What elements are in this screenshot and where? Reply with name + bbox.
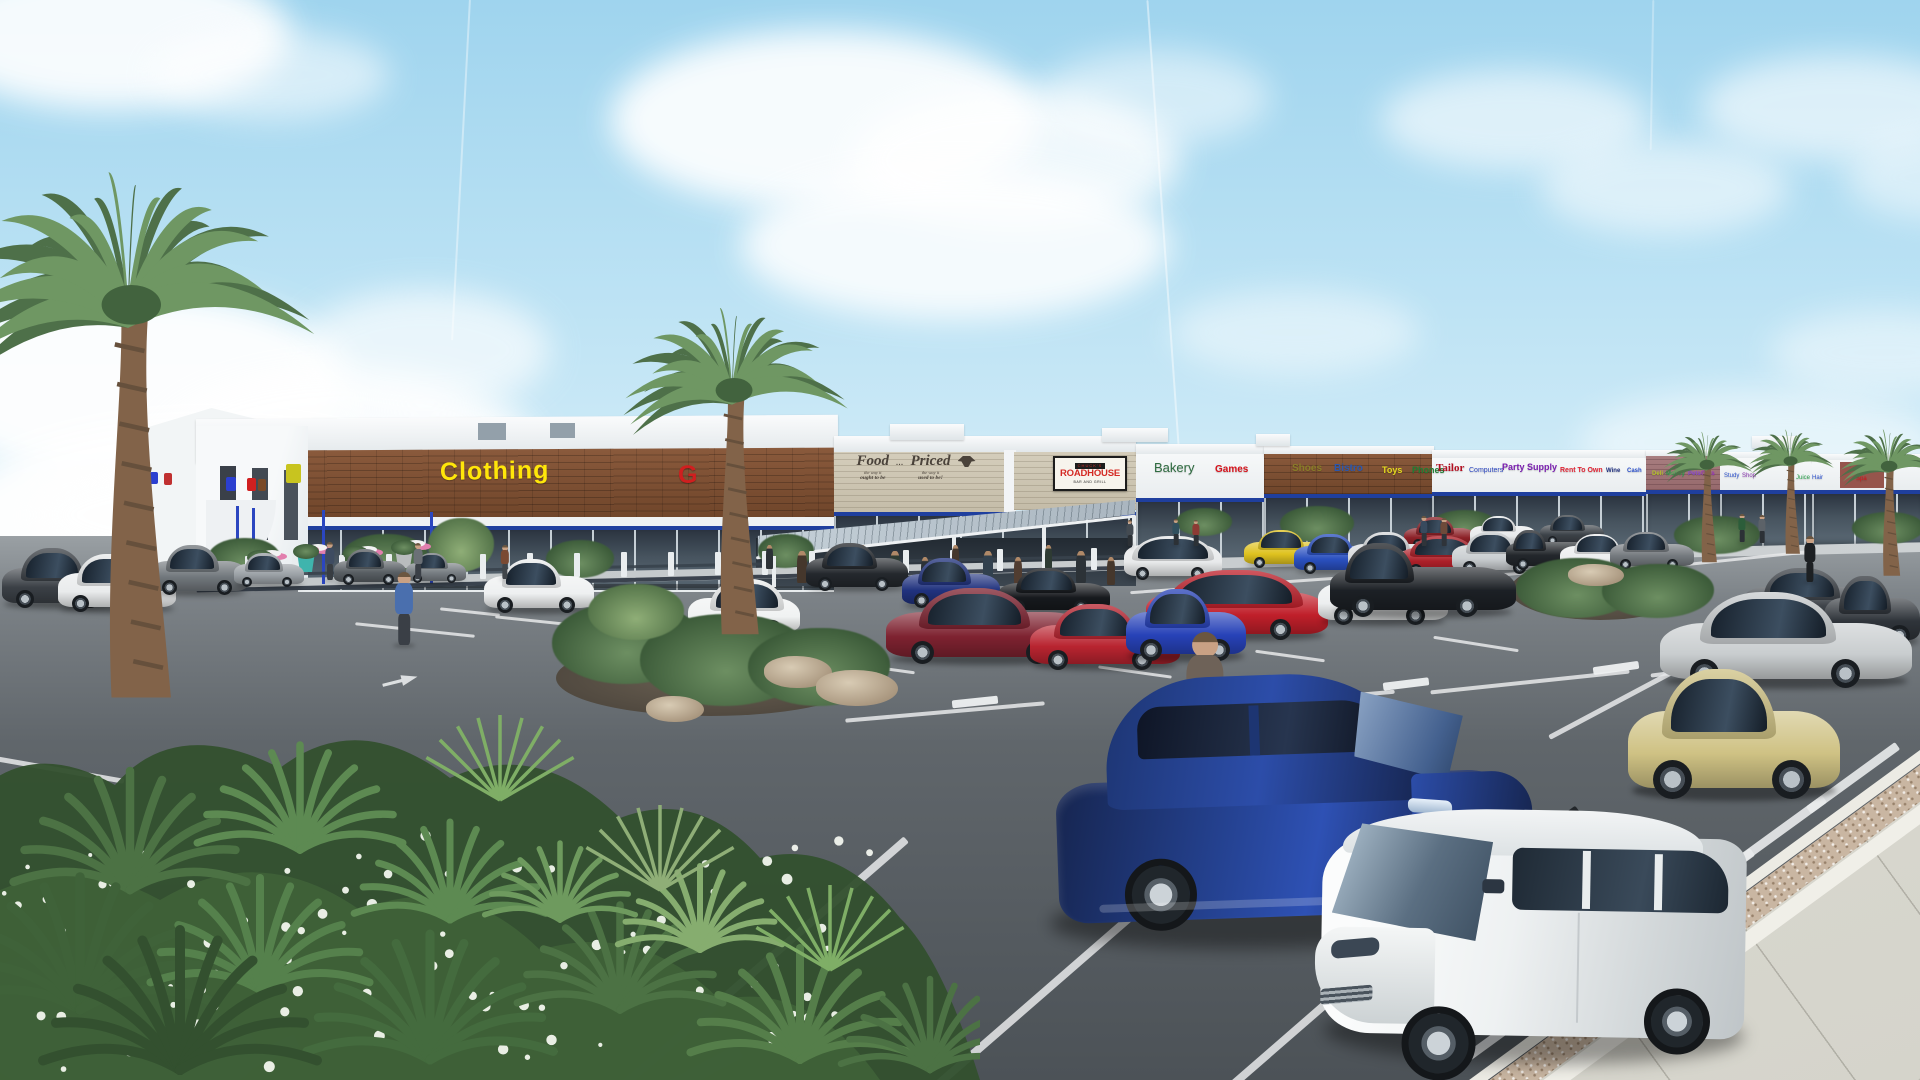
food-dots: ... bbox=[896, 453, 904, 468]
palm-tree bbox=[1657, 427, 1755, 566]
wood-fascia-right bbox=[1264, 454, 1434, 494]
face-bakery-games bbox=[1136, 454, 1266, 498]
food-priced-sign: Food the way it ought to be ... Priced t… bbox=[846, 453, 986, 505]
van-wheel bbox=[1401, 1006, 1476, 1080]
van-mirror bbox=[1482, 879, 1504, 893]
parapet-block bbox=[1256, 434, 1290, 446]
priced-word: Priced bbox=[911, 453, 951, 470]
parapet-block bbox=[1102, 428, 1168, 442]
rendering-canvas: Clothing G Food the way it ought to be .… bbox=[0, 0, 1920, 1080]
storefront bbox=[1264, 494, 1434, 560]
parapet-block bbox=[890, 424, 964, 440]
storefront bbox=[1136, 498, 1266, 566]
door-frame-blue bbox=[430, 512, 433, 584]
rooftop-unit bbox=[550, 423, 575, 438]
car-pillar bbox=[1248, 705, 1260, 755]
foreground-plants bbox=[0, 600, 980, 1080]
van-pillar bbox=[1654, 854, 1663, 910]
roadhouse-sign: CHUCK'S ROADHOUSE BAR AND GRILL bbox=[1053, 456, 1127, 491]
roadhouse-bottom: BAR AND GRILL bbox=[1074, 480, 1107, 484]
roadhouse-main: ROADHOUSE bbox=[1060, 469, 1120, 479]
food-tagline: ought to be bbox=[857, 475, 890, 481]
rooftop-unit bbox=[478, 423, 506, 440]
clothing-sign: Clothing bbox=[440, 458, 550, 485]
van-pillar bbox=[1582, 851, 1591, 909]
palm-tree bbox=[1833, 424, 1920, 580]
steer-icon bbox=[958, 456, 976, 467]
hero-white-minivan bbox=[1313, 736, 1755, 1074]
food-word: Food bbox=[857, 453, 890, 470]
van-side-windows bbox=[1512, 848, 1729, 914]
storefront bbox=[1432, 492, 1648, 556]
priced-tagline: used to be! bbox=[911, 475, 951, 481]
palm-tree bbox=[1743, 425, 1837, 558]
face-tailor-row bbox=[1432, 458, 1648, 492]
palm-tree bbox=[609, 296, 855, 645]
